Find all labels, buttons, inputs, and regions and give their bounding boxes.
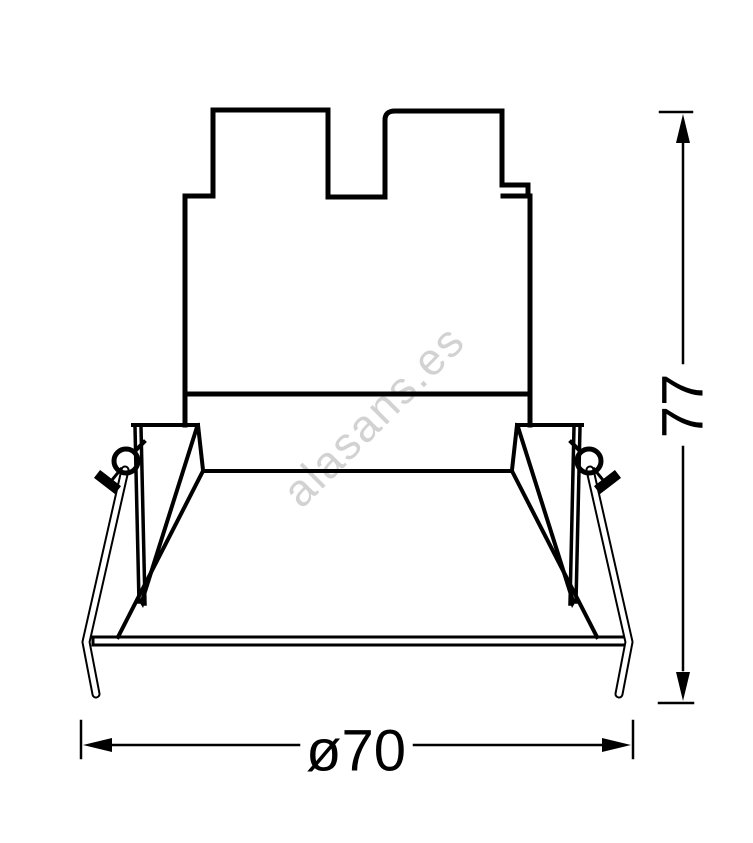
mounting-ear-left [133,425,198,608]
lamp-body-outline [185,196,530,425]
mounting-ear-right [517,425,582,608]
width-dimension-label: ø70 [306,718,406,785]
lamp-cap-outline [185,110,530,197]
reflector-cone [118,425,597,637]
height-dimension-label: 77 [650,374,717,439]
trim-flange [93,637,630,645]
drawing-canvas: alasans.es [0,0,753,843]
